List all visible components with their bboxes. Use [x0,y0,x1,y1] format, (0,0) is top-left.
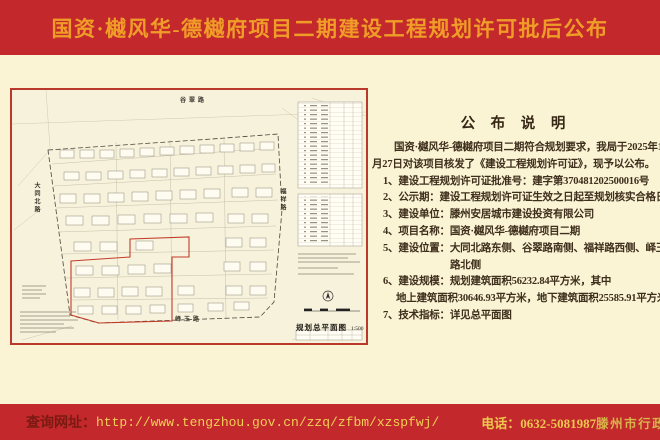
map-scale: 1:500 [351,326,364,332]
map-caption-title: 规划总平面图 [296,323,347,332]
title-banner: 国资·樾风华-德樾府项目二期建设工程规划许可批后公布 [0,0,660,55]
query-url-label: 查询网址： [26,412,96,432]
announcement-line: 月27日对该项目核发了《建设工程规划许可证》，现予以公布。 [372,157,660,174]
producer-credit: 滕州市行政审批服务局监制 [596,413,660,432]
query-url: http://www.tengzhou.gov.cn/zzq/zfbm/xzsp… [96,415,439,430]
map-caption: 规划总平面图1:500 [296,317,364,335]
road-label-top: 谷翠路 [180,98,207,105]
announcement-line: 路北侧 [372,258,660,275]
poster-title: 国资·樾风华-德樾府项目二期建设工程规划许可批后公布 [52,13,609,43]
announcement-text: 公 布 说 明 国资·樾风华-德樾府项目二期符合规划要求，我局于2025年1 月… [372,112,660,325]
announcement-line: 国资·樾风华-德樾府项目二期符合规划要求，我局于2025年1 [372,140,660,157]
announcement-line: 7、技术指标：详见总平面图 [372,308,660,325]
announcement-line: 1、建设工程规划许可证批准号：建字第370481202500016号 [372,174,660,191]
road-label-left: 大同北路 [32,182,39,214]
announcement-poster: 国资·樾风华-德樾府项目二期建设工程规划许可批后公布 [0,0,660,440]
site-plan-panel: 谷翠路 大同北路 福祥路 峄玉路 规划总平面图1:500 [10,88,368,345]
footer-bar: 查询网址： http://www.tengzhou.gov.cn/zzq/zfb… [0,404,660,440]
indicator-table-1 [298,102,362,188]
road-label-right: 福祥路 [278,188,285,212]
announcement-line: 3、建设单位：滕州安居城市建设投资有限公司 [372,207,660,224]
indicator-table-2 [298,194,362,246]
announcement-line: 5、建设位置：大同北路东侧、谷翠路南侧、福祥路西侧、峄玉 [372,241,660,258]
road-label-bottom: 峄玉路 [175,317,202,324]
announcement-line: 2、公示期：建设工程规划许可证生效之日起至规划核实合格日 [372,190,660,207]
announcement-line: 6、建设规模：规划建筑面积56232.84平方米，其中 [372,274,660,291]
announcement-line: 4、项目名称：国资·樾风华-德樾府项目二期 [372,224,660,241]
announcement-line: 地上建筑面积30646.93平方米，地下建筑面积25585.91平方米。 [372,291,660,308]
site-plan-drawing [12,90,366,343]
phone-number: 电话：0632-5081987 [481,413,596,432]
announcement-heading: 公 布 说 明 [372,112,660,133]
